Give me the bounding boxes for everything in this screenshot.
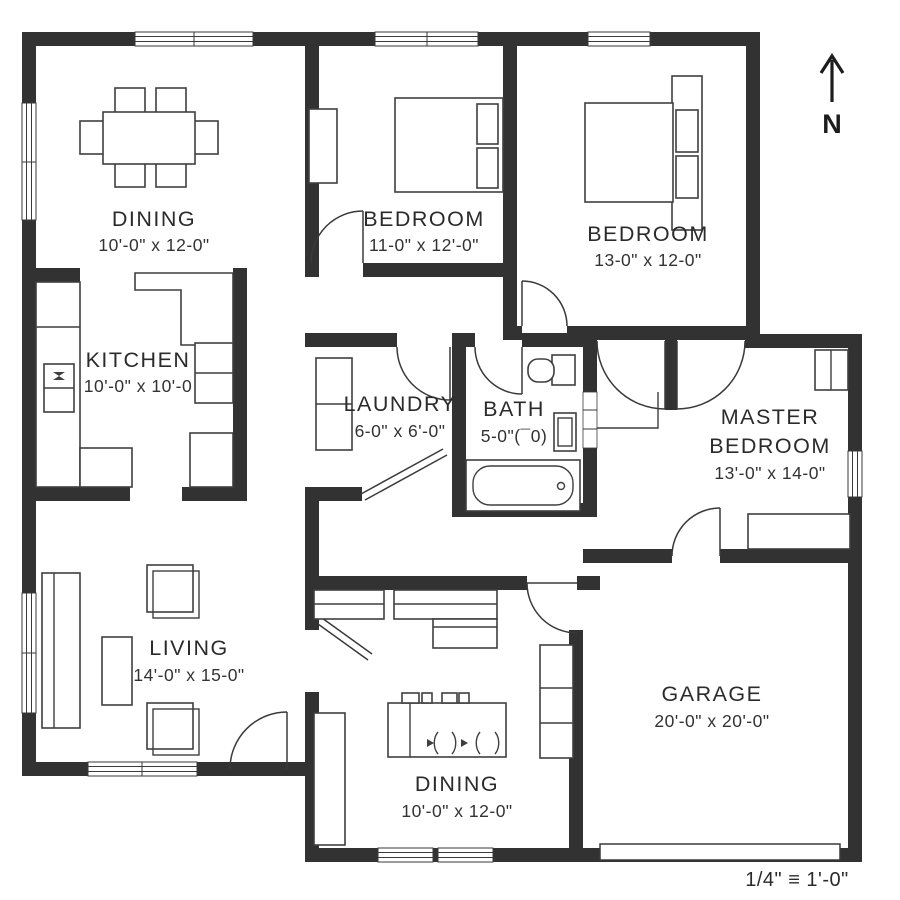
garage-door <box>600 844 840 860</box>
chair <box>194 121 218 154</box>
wall <box>305 333 397 347</box>
dining-table <box>103 112 195 164</box>
room-dims-laundry: 6-0" x 6'-0" <box>355 421 446 441</box>
room-dims-bedroom-right: 13-0" x 12-0" <box>594 250 701 270</box>
room-label-kitchen: KITCHEN <box>86 348 191 372</box>
counter <box>80 448 132 487</box>
door-swing <box>475 347 522 394</box>
wall <box>305 263 313 277</box>
room-label-bedroom-right: BEDROOM <box>587 222 709 246</box>
chair <box>115 88 145 113</box>
wall <box>503 32 517 340</box>
wall <box>848 334 862 862</box>
room-dims-kitchen: 10'-0" x 10'-0 <box>84 376 192 396</box>
room-dims-dining-top: 10'-0" x 12-0" <box>98 235 209 255</box>
chair <box>115 162 145 187</box>
north-arrow-icon: N <box>821 56 843 139</box>
door-swing <box>677 341 745 409</box>
chair <box>156 162 186 187</box>
wall <box>583 549 672 563</box>
linen-closet <box>583 392 597 448</box>
wall <box>319 576 527 590</box>
floor-plan-drawing: DINING 10'-0" x 12-0" BEDROOM 11-0" x 12… <box>0 0 900 900</box>
scale-label: 1/4" ≡ 1'-0" <box>745 869 849 891</box>
wall <box>305 487 362 501</box>
pillow <box>676 156 698 198</box>
bed <box>395 98 503 192</box>
toilet <box>528 355 575 385</box>
room-dims-master: 13'-0" x 14-0" <box>714 463 825 483</box>
window <box>375 32 478 46</box>
window <box>378 848 433 862</box>
window <box>88 762 197 776</box>
counter <box>314 713 345 845</box>
room-label-master-line1: MASTER <box>721 405 820 429</box>
pillow <box>477 148 498 188</box>
north-label: N <box>822 109 842 139</box>
room-label-bath: BATH <box>483 397 545 421</box>
chair <box>80 121 104 154</box>
window <box>848 451 862 497</box>
headboard <box>672 76 702 230</box>
tall-cabinet <box>540 645 573 758</box>
door-swing <box>597 341 665 409</box>
room-label-garage: GARAGE <box>662 682 763 706</box>
wall <box>577 576 600 590</box>
wall <box>36 487 130 501</box>
closet <box>394 590 497 619</box>
room-label-bedroom-middle: BEDROOM <box>363 207 485 231</box>
dresser <box>309 109 337 183</box>
counter <box>135 273 233 345</box>
window <box>22 103 36 220</box>
wall <box>745 334 862 348</box>
wall <box>517 326 522 340</box>
room-label-master-line2: BEDROOM <box>709 434 831 458</box>
window <box>22 593 36 713</box>
armchair <box>147 565 199 618</box>
angled-door <box>361 449 447 500</box>
wall <box>746 32 760 348</box>
floor-plan-page: DINING 10'-0" x 12-0" BEDROOM 11-0" x 12… <box>0 0 900 900</box>
room-dims-bedroom-middle: 11-0" x 12'-0" <box>369 235 479 255</box>
dresser <box>433 619 497 648</box>
pillow <box>477 104 498 144</box>
dining-buffet-table <box>388 693 506 757</box>
room-dims-living: 14'-0" x 15-0" <box>133 665 244 685</box>
coffee-table <box>102 637 132 705</box>
window <box>588 32 650 46</box>
wall <box>182 487 247 501</box>
closet <box>314 590 384 619</box>
dining-table-set <box>80 88 218 187</box>
room-dims-dining-bottom: 10'-0" x 12-0" <box>401 801 512 821</box>
door-swing <box>527 583 577 633</box>
bed <box>585 76 702 230</box>
armchair <box>147 703 199 755</box>
bathroom-sink <box>554 413 576 451</box>
window <box>438 848 493 862</box>
sofa <box>42 573 80 728</box>
closet-angled-door <box>318 618 372 660</box>
room-label-living: LIVING <box>149 636 229 660</box>
bathtub <box>466 460 580 511</box>
pillow <box>676 110 698 152</box>
room-dims-garage: 20'-0" x 20'-0" <box>654 711 769 731</box>
wall <box>452 333 466 517</box>
room-label-dining-bottom: DINING <box>415 772 499 796</box>
door-swing <box>522 281 567 326</box>
wall <box>665 334 677 410</box>
window <box>135 32 253 46</box>
counter <box>190 433 233 487</box>
wall <box>363 263 517 277</box>
door-swing <box>672 508 720 556</box>
chair <box>156 88 186 113</box>
nightstand <box>748 514 850 549</box>
wall <box>36 268 80 282</box>
room-label-laundry: LAUNDRY <box>344 392 457 416</box>
room-dims-bath: 5-0"(¯0) <box>481 426 548 446</box>
wall <box>233 268 247 501</box>
front-door-swing <box>230 712 287 769</box>
room-label-dining-top: DINING <box>112 207 196 231</box>
wall <box>720 549 862 563</box>
